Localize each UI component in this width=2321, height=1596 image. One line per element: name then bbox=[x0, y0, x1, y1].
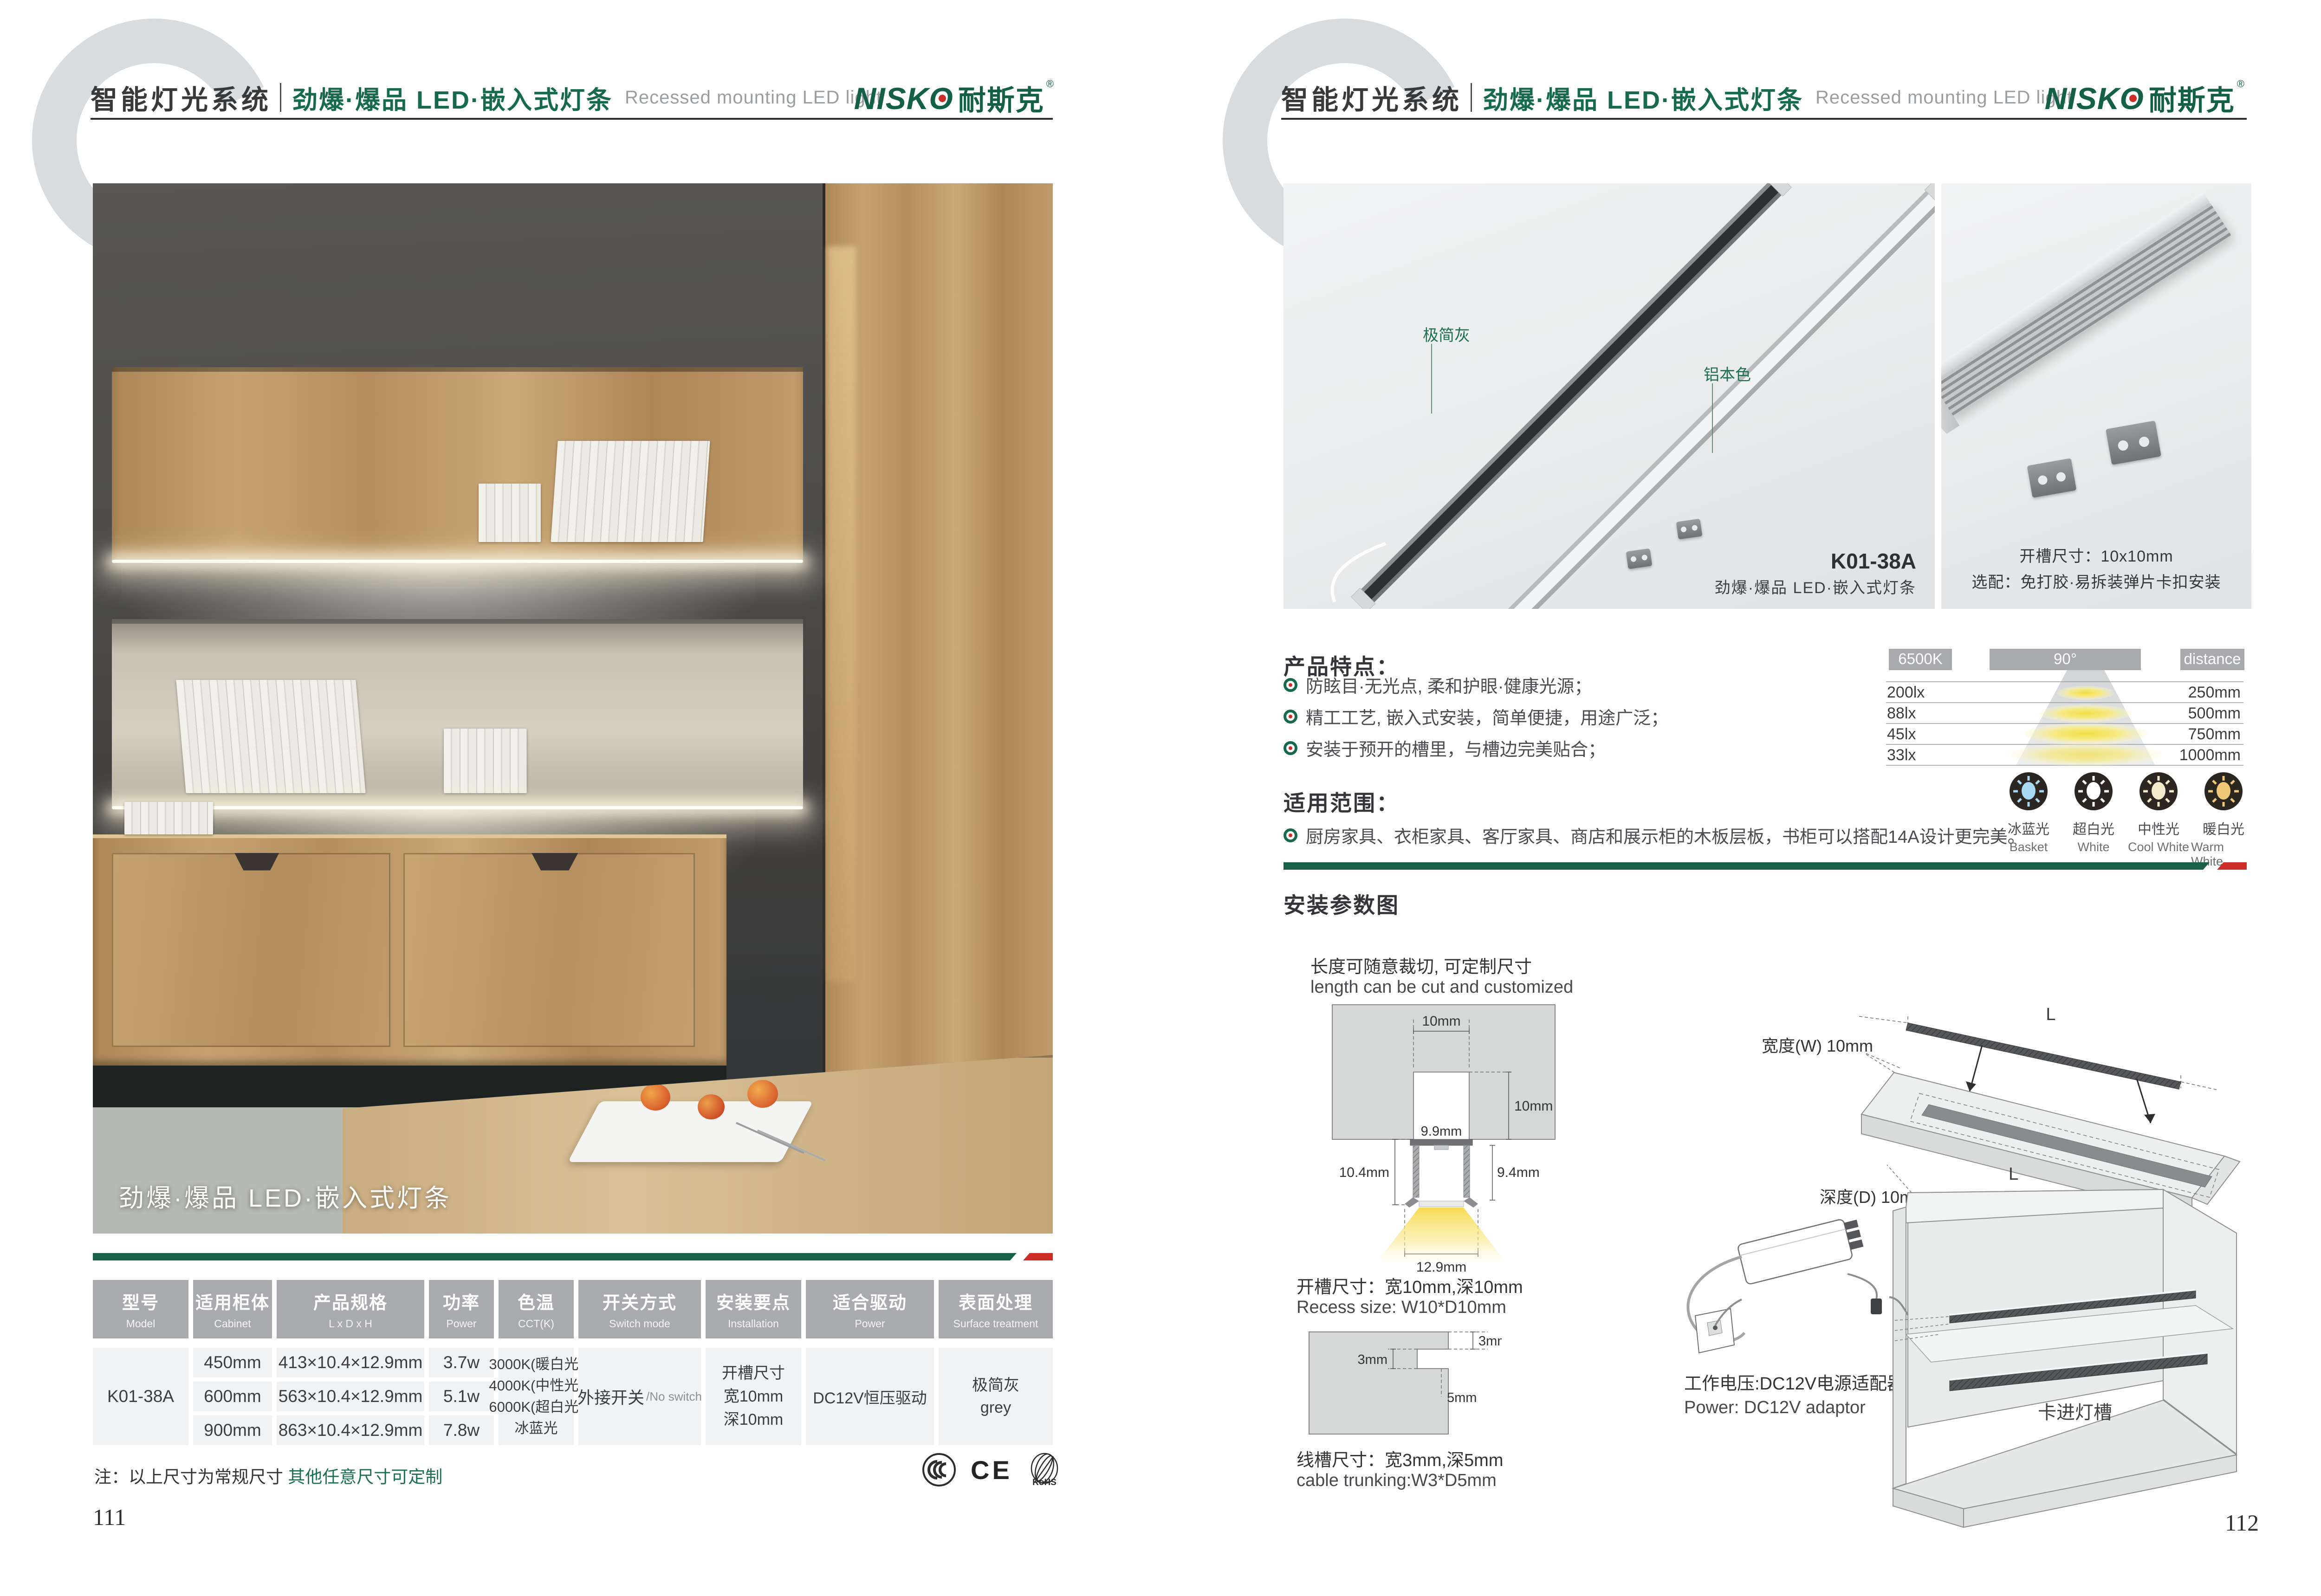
distance-value: 500mm bbox=[2188, 704, 2241, 722]
ce-icon: CE bbox=[971, 1455, 1012, 1485]
accent-bar bbox=[1284, 862, 2247, 870]
header-rule bbox=[1281, 118, 2247, 120]
detail-caption-1: 开槽尺寸：10x10mm bbox=[1941, 543, 2251, 566]
panel-width-label: 宽度(W) 10mm bbox=[1762, 1036, 1873, 1055]
plate bbox=[568, 1101, 813, 1162]
catalog-spread: 智能灯光系统 劲爆·爆品 LED·嵌入式灯条 Recessed mounting… bbox=[0, 0, 2321, 1596]
dim-slot-width: 10mm bbox=[1422, 1014, 1460, 1029]
cell-driver: DC12V恒压驱动 bbox=[806, 1348, 934, 1445]
distance-value: 250mm bbox=[2188, 684, 2241, 701]
profile-endcap bbox=[1941, 371, 1960, 439]
scope-title: 适用范围： bbox=[1284, 785, 1400, 817]
color-mode-coolwhite: 中性光Cool White bbox=[2126, 771, 2191, 869]
header-subtitle-en: Recessed mounting LED light bbox=[1815, 87, 2073, 108]
cell-spec: 863×10.4×12.9mm bbox=[277, 1415, 424, 1445]
books bbox=[124, 802, 213, 834]
brand-logo: NISKO 耐斯克 ® bbox=[2045, 78, 2244, 118]
bulb-icon bbox=[2074, 771, 2114, 811]
brand-dot-icon bbox=[939, 95, 946, 102]
label-gray-finish: 极简灰 bbox=[1423, 323, 1470, 345]
books bbox=[551, 441, 710, 542]
page-111: 智能灯光系统 劲爆·爆品 LED·嵌入式灯条 Recessed mounting… bbox=[0, 0, 1146, 1596]
page-header: 智能灯光系统 劲爆·爆品 LED·嵌入式灯条 Recessed mounting… bbox=[91, 73, 882, 122]
snap-in-label: 卡进灯槽 bbox=[2038, 1402, 2112, 1423]
badge-cct: 6500K bbox=[1898, 650, 1942, 667]
col-header-cct: 色温CCT(K) bbox=[499, 1280, 574, 1338]
cell-cabinet: 900mm bbox=[193, 1415, 272, 1445]
install-section-title: 安装参数图 bbox=[1284, 887, 1400, 919]
col-header-spec: 产品规格L x D x H bbox=[277, 1280, 424, 1338]
target-bullet-icon bbox=[1284, 678, 1297, 692]
bulb-icon bbox=[2009, 771, 2049, 811]
brand-dot-icon bbox=[2129, 95, 2137, 102]
dim-inner-width: 9.9mm bbox=[1421, 1124, 1462, 1139]
bulb-icon bbox=[2204, 771, 2243, 811]
scope-item: 厨房家具、衣柜家具、客厅家具、商店和展示柜的木板层板，书柜可以搭配14A设计更完… bbox=[1284, 822, 2025, 848]
cell-cct: 3000K(暖白光)4000K(中性光) 6000K(超白光)冰蓝光 bbox=[499, 1348, 574, 1445]
col-header-model: 型号Model bbox=[93, 1280, 188, 1338]
label-aluminum-finish: 铝本色 bbox=[1704, 362, 1751, 385]
trunking-size-cn: 线槽尺寸：宽3mm,深5mm bbox=[1297, 1446, 1503, 1471]
col-header-install: 安装要点Installation bbox=[706, 1280, 801, 1338]
photo-caption: 劲爆·爆品 LED·嵌入式灯条 bbox=[119, 1177, 452, 1214]
mounting-clip bbox=[2027, 458, 2077, 498]
profile-flange bbox=[1941, 192, 2210, 384]
led-strip-lit bbox=[112, 560, 803, 563]
light-distribution-chart: 6500K 90° distance 200lx 88lx 45lx 33lx … bbox=[1882, 646, 2244, 769]
header-subtitle-cn: 劲爆·爆品 LED·嵌入式灯条 bbox=[1483, 79, 1803, 116]
mounting-clip bbox=[1626, 549, 1653, 569]
header-rule bbox=[91, 118, 1053, 120]
product-photo-main: 极简灰 铝本色 K01-38A 劲爆·爆品 LED·嵌入式灯条 bbox=[1284, 183, 1935, 609]
cabinet-illustration: 卡进灯槽 bbox=[1889, 1181, 2247, 1534]
badge-beam-angle: 90° bbox=[2054, 650, 2077, 667]
dim-slot-depth: 10mm bbox=[1514, 1098, 1553, 1114]
page-number: 111 bbox=[93, 1504, 126, 1531]
target-bullet-icon bbox=[1284, 710, 1297, 724]
peach bbox=[698, 1094, 725, 1119]
col-header-cabinet: 适用柜体Cabinet bbox=[193, 1280, 272, 1338]
light-cone bbox=[1375, 1208, 1508, 1265]
badge-distance: distance bbox=[2184, 650, 2241, 667]
dim-body-height: 9.4mm bbox=[1497, 1165, 1540, 1180]
feature-item: 防眩目·无光点, 柔和护眼·健康光源； bbox=[1284, 672, 1592, 698]
distance-value: 750mm bbox=[2188, 725, 2241, 743]
model-number: K01-38A bbox=[1831, 549, 1916, 574]
spec-table-header: 型号Model 适用柜体Cabinet 产品规格L x D x H 功率Powe… bbox=[93, 1280, 1053, 1338]
cell-surface: 极简灰grey bbox=[939, 1348, 1053, 1445]
feature-item: 精工工艺, 嵌入式安装，简单便捷，用途广泛； bbox=[1284, 704, 1668, 729]
power-adaptor-illustration bbox=[1671, 1197, 1894, 1355]
product-photo-detail: 开槽尺寸：10x10mm 选配：免打胶·易拆装弹片卡扣安装 bbox=[1941, 183, 2251, 609]
mounting-clip bbox=[1676, 519, 1703, 540]
power-cord bbox=[1316, 541, 1437, 606]
books bbox=[444, 729, 527, 793]
sideboard-drawer bbox=[112, 853, 391, 1047]
trunking-size-en: cable trunking:W3*D5mm bbox=[1297, 1471, 1497, 1491]
photo-shelf-1 bbox=[112, 367, 803, 562]
lifestyle-photo: 劲爆·爆品 LED·嵌入式灯条 bbox=[93, 183, 1053, 1234]
color-mode-white: 超白光White bbox=[2061, 771, 2126, 869]
brand-registered-mark: ® bbox=[1046, 78, 1054, 90]
drawer-handle bbox=[532, 853, 578, 871]
photo-cabinet-glow bbox=[827, 246, 856, 982]
bulb-icon bbox=[2139, 771, 2178, 811]
length-label-top: L bbox=[2046, 1005, 2055, 1024]
col-header-power: 功率Power bbox=[429, 1280, 494, 1338]
brand-registered-mark: ® bbox=[2237, 78, 2244, 90]
dim-profile-height: 10.4mm bbox=[1339, 1165, 1389, 1180]
peach bbox=[641, 1084, 670, 1111]
cell-power: 7.8w bbox=[429, 1415, 494, 1445]
cell-cabinet: 600mm bbox=[193, 1382, 272, 1411]
table-note: 注：以上尺寸为常规尺寸 其他任意尺寸可定制 bbox=[94, 1463, 442, 1488]
photo-shelf-2 bbox=[112, 619, 803, 808]
page-number: 112 bbox=[2225, 1509, 2259, 1536]
photo-carpet bbox=[93, 1107, 381, 1234]
working-voltage-en: Power: DC12V adaptor bbox=[1684, 1398, 1866, 1418]
working-voltage-cn: 工作电压:DC12V电源适配器 bbox=[1684, 1369, 1905, 1395]
color-modes: 冰蓝光Basket 超白光White 中性光Cool White 暖白光Warm… bbox=[1996, 771, 2256, 869]
peach bbox=[747, 1080, 778, 1108]
books bbox=[479, 484, 541, 542]
cell-cabinet: 450mm bbox=[193, 1348, 272, 1377]
photo-sideboard bbox=[93, 834, 726, 1066]
col-header-surface: 表面处理Surface treatment bbox=[939, 1280, 1053, 1338]
header-subtitle-en: Recessed mounting LED light bbox=[625, 87, 882, 108]
led-strip bbox=[1906, 1023, 2181, 1089]
certifications: CE RoHS bbox=[921, 1452, 1063, 1488]
svg-text:RoHS: RoHS bbox=[1032, 1478, 1057, 1487]
cross-section-diagram: 10mm 10mm 9.9mm 10.4mm 9.4mm 12.9mm bbox=[1300, 998, 1588, 1276]
spec-table: 型号Model 适用柜体Cabinet 产品规格L x D x H 功率Powe… bbox=[93, 1280, 1053, 1445]
ccc-icon bbox=[921, 1452, 957, 1487]
cell-power: 5.1w bbox=[429, 1382, 494, 1411]
cell-power: 3.7w bbox=[429, 1348, 494, 1377]
distance-value: 1000mm bbox=[2179, 746, 2241, 764]
model-caption: 劲爆·爆品 LED·嵌入式灯条 bbox=[1715, 575, 1916, 598]
cell-spec: 413×10.4×12.9mm bbox=[277, 1348, 424, 1377]
connector-plug bbox=[1871, 1299, 1882, 1314]
dim-trunk-depth: 5mm bbox=[1447, 1390, 1477, 1405]
accent-bar bbox=[93, 1253, 1053, 1260]
drawer-handle bbox=[234, 853, 279, 871]
lux-value: 45lx bbox=[1887, 725, 1916, 743]
cable-trunking-diagram: 3mm 3mm 5mm bbox=[1302, 1325, 1502, 1441]
spec-table-body: K01-38A 450mm 600mm 900mm 413×10.4×12.9m… bbox=[93, 1348, 1053, 1445]
lux-value: 88lx bbox=[1887, 704, 1916, 722]
target-bullet-icon bbox=[1284, 828, 1297, 842]
page-112: 智能灯光系统 劲爆·爆品 LED·嵌入式灯条 Recessed mounting… bbox=[1191, 0, 2321, 1596]
cell-spec: 563×10.4×12.9mm bbox=[277, 1382, 424, 1411]
header-subtitle-cn: 劲爆·爆品 LED·嵌入式灯条 bbox=[292, 79, 613, 116]
cell-install: 开槽尺寸宽10mm深10mm bbox=[706, 1348, 801, 1445]
led-strip-lit bbox=[112, 806, 803, 809]
recess-size-en: Recess size: W10*D10mm bbox=[1297, 1298, 1506, 1318]
cut-note-cn: 长度可随意裁切, 可定制尺寸 bbox=[1310, 952, 1532, 978]
lux-value: 200lx bbox=[1887, 684, 1925, 701]
color-mode-iceblue: 冰蓝光Basket bbox=[1996, 771, 2061, 869]
brand-latin: NISKO bbox=[854, 81, 953, 116]
brand-logo: NISKO 耐斯克 ® bbox=[854, 78, 1054, 118]
dim-trunk-edge: 3mm bbox=[1478, 1334, 1502, 1349]
brand-chinese: 耐斯克 bbox=[958, 78, 1044, 118]
cell-model: K01-38A bbox=[93, 1348, 188, 1445]
color-mode-warmwhite: 暖白光Warm White bbox=[2191, 771, 2256, 869]
lux-value: 33lx bbox=[1887, 746, 1916, 764]
header-divider bbox=[1471, 83, 1472, 112]
page-header: 智能灯光系统 劲爆·爆品 LED·嵌入式灯条 Recessed mounting… bbox=[1281, 73, 2073, 122]
recess-size-cn: 开槽尺寸：宽10mm,深10mm bbox=[1297, 1273, 1523, 1298]
col-header-driver: 适合驱动Power bbox=[806, 1280, 934, 1338]
mounting-clip bbox=[2106, 420, 2161, 465]
header-divider bbox=[280, 83, 281, 112]
books bbox=[176, 680, 366, 793]
sideboard-drawer bbox=[403, 853, 695, 1047]
profile-extrusion bbox=[1941, 202, 2231, 418]
detail-caption-2: 选配：免打胶·易拆装弹片卡扣安装 bbox=[1941, 569, 2251, 592]
brand-latin: NISKO bbox=[2045, 81, 2144, 116]
feature-item: 安装于预开的槽里，与槽边完美贴合； bbox=[1284, 735, 1606, 761]
rohs-icon: RoHS bbox=[1026, 1452, 1063, 1488]
header-system-title: 智能灯光系统 bbox=[1281, 78, 1462, 117]
col-header-switch: 开关方式Switch mode bbox=[578, 1280, 701, 1338]
cell-switch: 外接开关 /No switch bbox=[578, 1348, 701, 1445]
dim-trunk-width: 3mm bbox=[1358, 1352, 1387, 1367]
cut-note-en: length can be cut and customized bbox=[1310, 977, 1573, 997]
brand-chinese: 耐斯克 bbox=[2149, 78, 2235, 118]
target-bullet-icon bbox=[1284, 741, 1297, 755]
header-system-title: 智能灯光系统 bbox=[91, 78, 272, 117]
